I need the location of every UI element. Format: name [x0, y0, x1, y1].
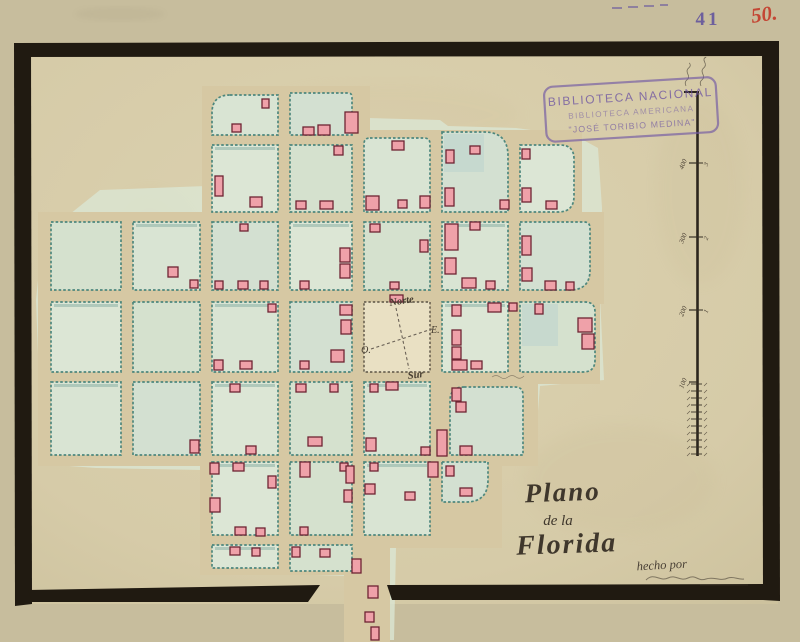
building: [452, 360, 467, 370]
building: [446, 466, 454, 476]
building: [437, 430, 447, 456]
pencil-smudge: [75, 7, 165, 21]
building: [500, 200, 509, 209]
building: [452, 330, 461, 345]
building: [522, 236, 531, 255]
building: [308, 437, 322, 446]
compass-label-east: E.: [430, 325, 440, 336]
building: [398, 200, 407, 208]
building: [232, 124, 241, 132]
building: [445, 224, 458, 250]
building: [460, 488, 472, 496]
collection-number: 50.: [749, 0, 778, 27]
building: [210, 463, 219, 474]
building: [331, 350, 344, 362]
building: [390, 282, 399, 289]
building: [240, 224, 248, 231]
plaza-block: [364, 302, 430, 372]
building: [460, 446, 472, 455]
building: [522, 149, 530, 159]
building: [352, 559, 361, 573]
building: [168, 267, 178, 277]
building: [470, 146, 480, 154]
city-block: [212, 382, 278, 455]
building: [260, 281, 268, 289]
building: [446, 150, 454, 163]
title-line-2: de la: [543, 513, 573, 529]
building: [215, 176, 223, 196]
building: [456, 402, 466, 412]
building: [365, 484, 375, 494]
building: [300, 281, 309, 289]
building: [566, 282, 574, 290]
building: [334, 146, 343, 155]
building: [345, 112, 358, 133]
compass-label-west: O.: [361, 345, 371, 356]
city-block: [364, 462, 430, 535]
building: [445, 258, 456, 274]
building: [366, 438, 376, 451]
building: [421, 447, 430, 455]
building: [445, 188, 454, 206]
city-block: [290, 462, 352, 535]
building: [371, 627, 379, 640]
building: [486, 281, 495, 289]
building: [368, 586, 378, 598]
building: [420, 240, 428, 252]
building: [320, 549, 330, 557]
city-block: [212, 462, 278, 535]
building: [578, 318, 592, 332]
building: [535, 304, 543, 314]
building: [452, 347, 461, 359]
building: [386, 382, 398, 390]
building: [428, 462, 438, 477]
building: [471, 361, 482, 369]
building: [262, 99, 269, 108]
building: [300, 462, 310, 477]
building: [235, 527, 246, 535]
building: [250, 197, 262, 207]
building: [268, 304, 276, 312]
building: [340, 248, 350, 262]
building: [392, 141, 404, 150]
building: [522, 188, 531, 202]
building: [340, 264, 350, 278]
building: [420, 196, 430, 208]
building: [268, 476, 276, 488]
catalog-number: 41: [696, 9, 721, 30]
building: [292, 547, 300, 557]
building: [256, 528, 265, 536]
building: [340, 305, 352, 315]
city-block: [51, 222, 121, 290]
building: [366, 196, 379, 210]
building: [252, 548, 260, 556]
building: [246, 446, 256, 454]
frame-left: [14, 43, 32, 606]
building: [462, 278, 476, 288]
building: [546, 201, 557, 209]
building: [545, 281, 556, 290]
title-line-1: Plano: [523, 476, 601, 509]
building: [452, 388, 461, 401]
building: [300, 361, 309, 369]
city-block: [51, 302, 121, 372]
building: [320, 201, 333, 209]
building: [370, 463, 378, 471]
frame-bottom-right: [387, 584, 779, 600]
building: [210, 498, 220, 512]
building: [470, 222, 480, 230]
building: [300, 527, 308, 535]
building: [330, 384, 338, 392]
map-photo-svg: Norte E. O. Sur 400300200100321 BIBLIOTE…: [0, 0, 800, 642]
building: [296, 384, 306, 392]
compass-label-south: Sur: [407, 369, 425, 382]
building: [370, 224, 380, 232]
building: [238, 281, 248, 289]
building: [582, 334, 594, 349]
building: [365, 612, 374, 622]
building: [488, 303, 501, 312]
city-block: [51, 382, 121, 455]
building: [230, 384, 240, 392]
florida-map-scan: Norte E. O. Sur 400300200100321 BIBLIOTE…: [0, 0, 800, 642]
city-block: [133, 302, 200, 372]
building: [346, 466, 354, 483]
building: [215, 281, 223, 289]
city-block: [212, 222, 278, 290]
building: [303, 127, 314, 135]
frame-right: [762, 41, 780, 601]
credit-text: hecho por: [636, 557, 687, 574]
building: [214, 360, 223, 370]
building: [405, 492, 415, 500]
building: [318, 125, 330, 135]
building: [190, 440, 199, 453]
building: [370, 384, 378, 392]
building: [344, 490, 352, 502]
building: [509, 303, 517, 311]
building: [341, 320, 351, 334]
building: [452, 305, 461, 316]
building: [230, 547, 240, 555]
building: [190, 280, 198, 288]
frame-top: [17, 41, 779, 57]
building: [240, 361, 252, 369]
building: [233, 463, 244, 471]
building: [522, 268, 532, 281]
title-line-3: Florida: [515, 527, 618, 562]
building: [296, 201, 306, 209]
